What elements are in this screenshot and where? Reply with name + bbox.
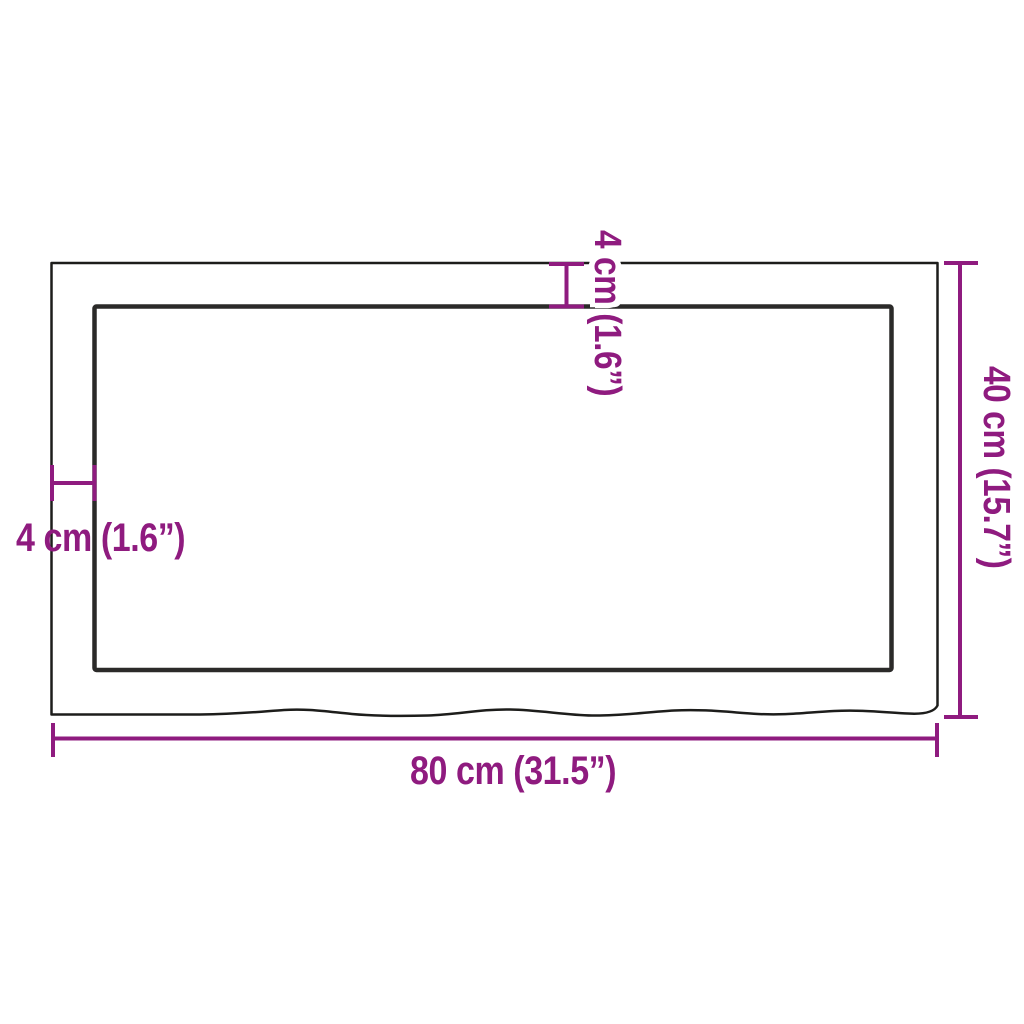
tabletop-inner-outline <box>95 307 892 671</box>
left-thickness-marker <box>52 465 95 501</box>
height-dimension-line <box>944 263 978 717</box>
dimension-diagram: 4 cm (1.6”) 40 cm (15.7”) 4 cm (1.6”) 80… <box>0 0 1024 1024</box>
top-thickness-marker <box>549 264 584 307</box>
height-dimension-label: 40 cm (15.7”) <box>977 366 1015 568</box>
left-thickness-label: 4 cm (1.6”) <box>16 518 185 558</box>
top-thickness-label: 4 cm (1.6”) <box>588 230 626 396</box>
tabletop-drawing <box>0 0 1024 1024</box>
width-dimension-label: 80 cm (31.5”) <box>410 751 616 791</box>
tabletop-outer-outline <box>52 263 938 716</box>
